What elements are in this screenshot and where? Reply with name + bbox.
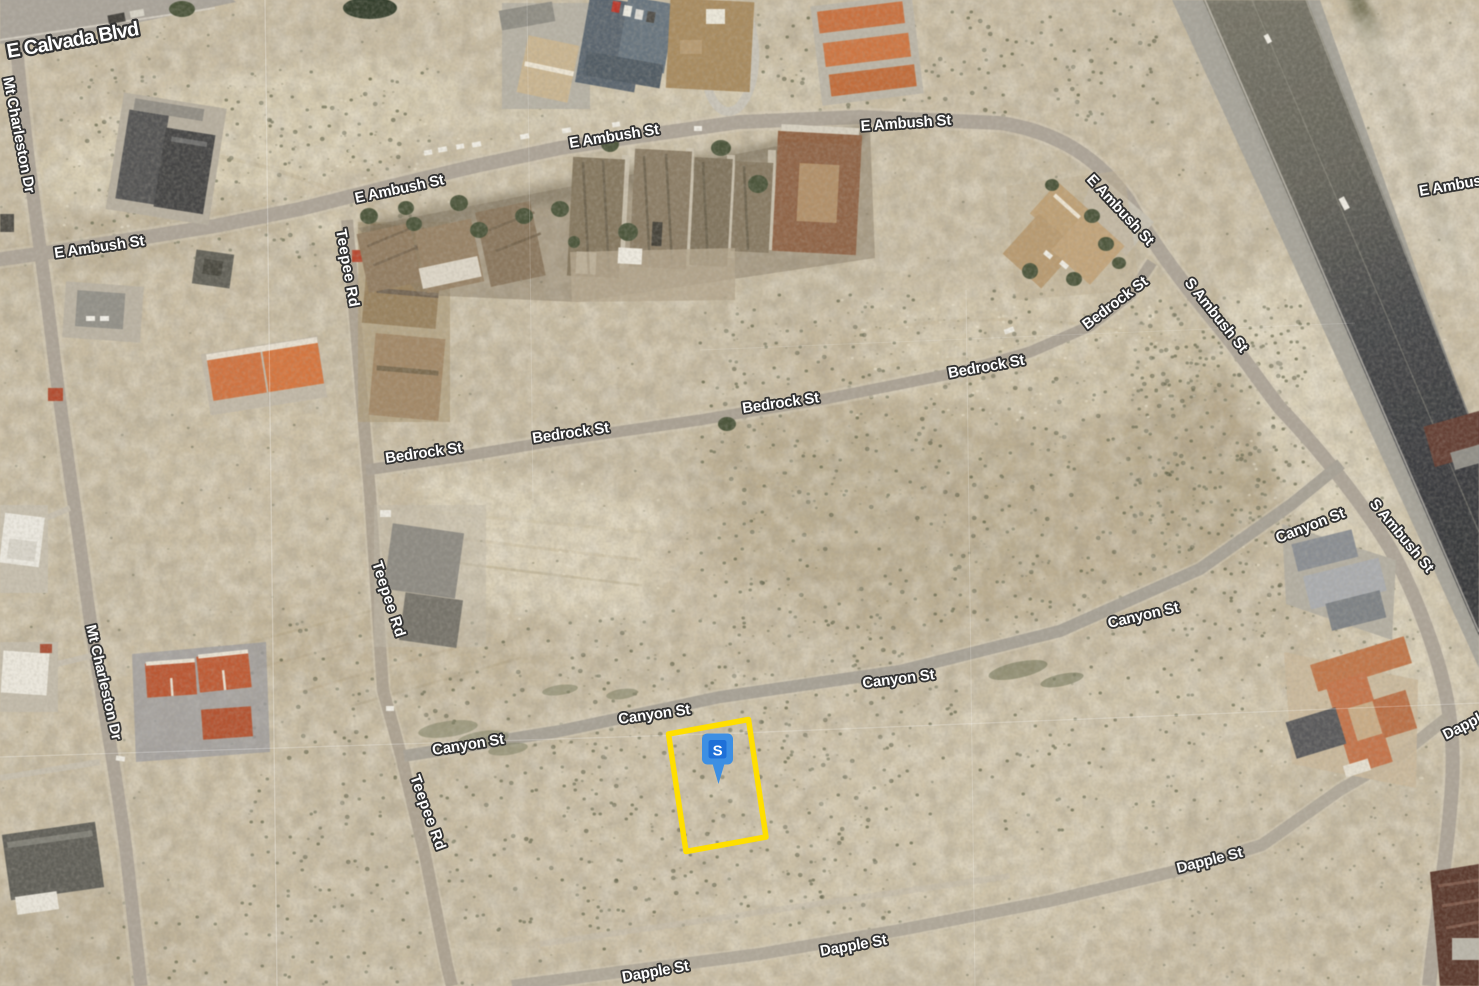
svg-text:S: S (713, 743, 723, 760)
